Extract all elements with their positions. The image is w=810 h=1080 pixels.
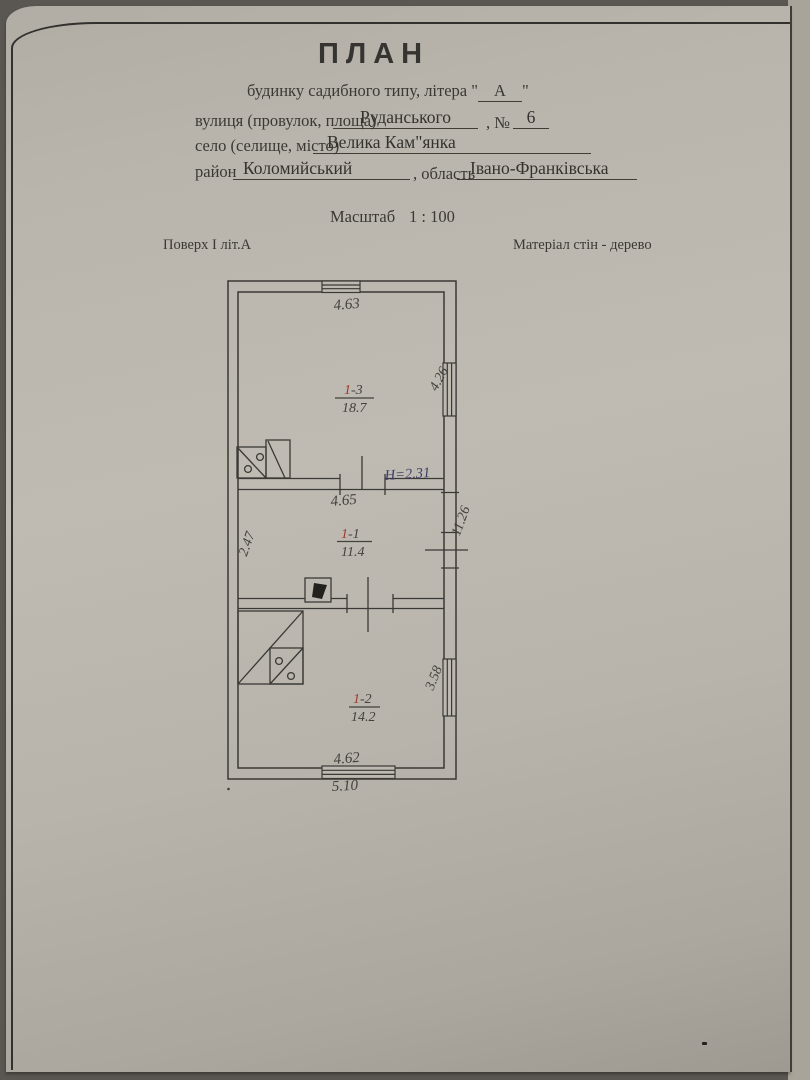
stove-icon-room-1-2 xyxy=(238,611,303,684)
room-number-suffix: -3 xyxy=(351,383,363,398)
room-labels: 1-3 18.7 1-1 11.4 1-2 14.2 xyxy=(335,383,380,725)
room-number-suffix: -1 xyxy=(348,527,360,542)
room-number-red: 1 xyxy=(344,383,351,398)
room-number-red: 1 xyxy=(353,692,360,707)
region-value: Івано-Франківська xyxy=(457,158,637,180)
subtitle-line: будинку садибного типу, літера "А" xyxy=(247,81,529,102)
dim-top-width: 4.63 xyxy=(333,296,361,314)
window-right-lower xyxy=(443,659,456,716)
door-opening-ticks xyxy=(347,594,393,613)
number-value: 6 xyxy=(513,107,549,129)
dim-right-total: 11.26 xyxy=(449,504,474,538)
dim-bottom-width-outer: 5.10 xyxy=(331,778,359,795)
street-value: Руданського xyxy=(333,107,478,129)
room-label-1-1: 1-1 11.4 xyxy=(337,527,372,560)
material-note: Матеріал стін - дерево xyxy=(513,237,652,254)
stove-icon-room-1-3 xyxy=(237,440,290,478)
svg-text:1-1: 1-1 xyxy=(341,527,360,542)
dim-bottom-width-inner: 4.62 xyxy=(333,750,361,768)
underlying-page-edge xyxy=(788,0,810,1080)
window-top xyxy=(322,281,360,293)
letter-value: А xyxy=(478,81,522,102)
page-title: ПЛАН xyxy=(318,38,429,71)
room-area: 11.4 xyxy=(341,545,364,560)
svg-text:1-3: 1-3 xyxy=(344,383,363,398)
chimney-flue-icon xyxy=(305,578,331,602)
room-area: 14.2 xyxy=(351,710,376,725)
district-value: Коломийський xyxy=(233,158,410,180)
district-label: район xyxy=(195,162,236,182)
paper-speck xyxy=(702,1042,707,1045)
stray-dot xyxy=(227,788,230,791)
dim-middle-width: 4.65 xyxy=(330,492,358,510)
room-area: 18.7 xyxy=(342,401,368,416)
scanned-document-photo: ПЛАН будинку садибного типу, літера "А" … xyxy=(0,0,810,1080)
window-bottom xyxy=(322,766,395,779)
room-number-suffix: -2 xyxy=(360,692,372,707)
floor-plan-svg: 4.63 4.26 Н=2.31 4.65 2.47 11.26 3.58 4.… xyxy=(200,270,480,800)
dim-left-depth: 2.47 xyxy=(236,529,259,558)
interior-wall-lower xyxy=(238,577,444,632)
scale-label: Масштаб xyxy=(330,207,395,227)
subtitle-prefix: будинку садибного типу, літера " xyxy=(247,81,478,100)
subtitle-suffix: " xyxy=(522,81,529,100)
room-number-red: 1 xyxy=(341,527,348,542)
floor-note: Поверх І літ.А xyxy=(163,237,251,254)
settlement-value: Велика Кам"янка xyxy=(313,132,591,154)
dim-height-note: Н=2.31 xyxy=(383,465,431,484)
room-label-1-2: 1-2 14.2 xyxy=(349,692,380,725)
number-label: , № xyxy=(486,113,510,133)
scale-value: 1 : 100 xyxy=(409,207,455,227)
room-label-1-3: 1-3 18.7 xyxy=(335,383,374,416)
svg-text:1-2: 1-2 xyxy=(353,692,372,707)
